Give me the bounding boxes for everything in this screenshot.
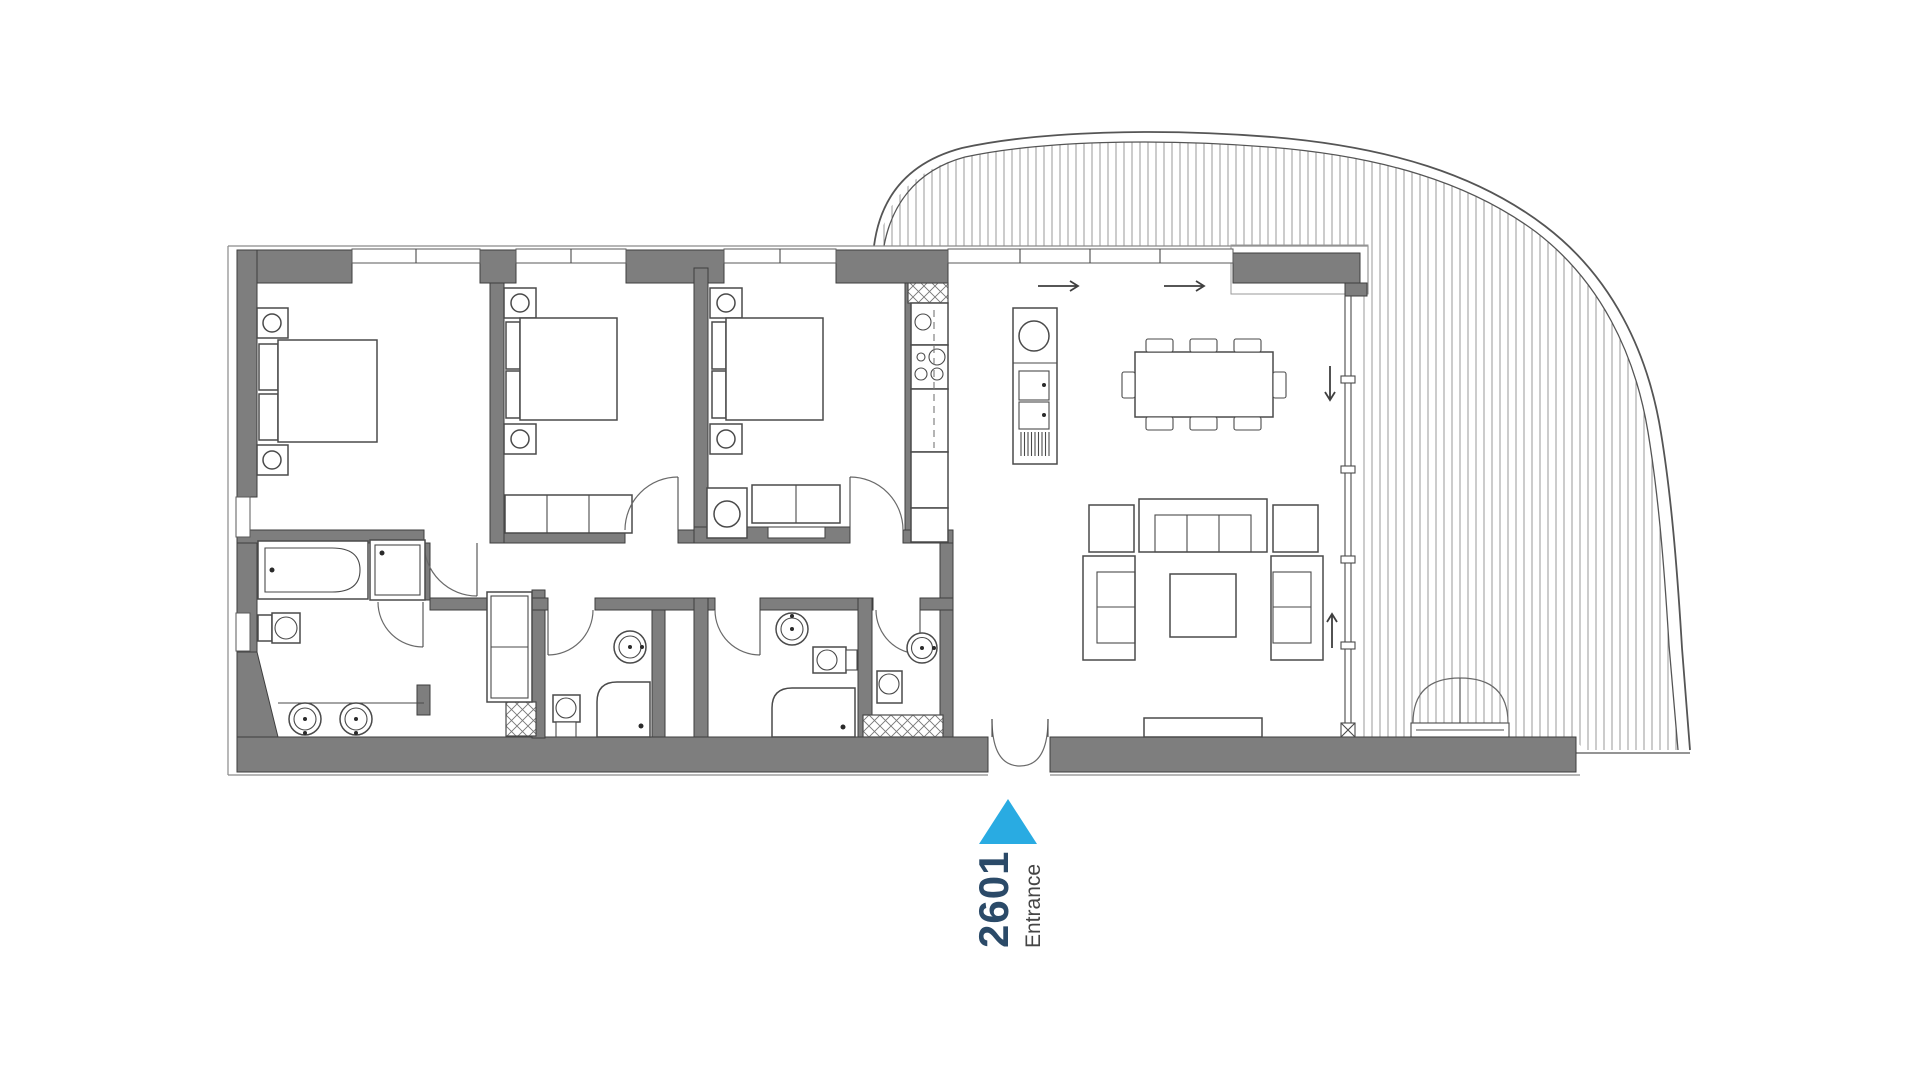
wall-bed2-bottom-b [678, 530, 694, 543]
dining-chair [1146, 417, 1173, 430]
pillow [506, 322, 520, 369]
shaft-kitchen [908, 283, 948, 303]
shower [597, 682, 650, 737]
dining-chair [1190, 339, 1217, 352]
powder-room [876, 610, 937, 703]
wall-top-right-step [1345, 283, 1367, 296]
washbasin-tap-icon [303, 731, 307, 735]
dining-chair [1122, 372, 1135, 398]
bathroom-2 [548, 610, 650, 737]
bedroom-3 [707, 288, 903, 538]
entrance-label: Entrance [1022, 864, 1045, 948]
washbasin-drain-icon [628, 645, 632, 649]
door-arc-ensuite [378, 602, 423, 647]
entry-door-jambs [992, 719, 1048, 737]
pillow [506, 371, 520, 418]
pillow [259, 344, 278, 390]
window-left-1 [236, 497, 250, 537]
double-bed [278, 340, 377, 442]
kitchen-cabinet [911, 303, 948, 345]
living-area [1083, 499, 1323, 737]
window-left-2 [236, 613, 250, 651]
dining-chair [1190, 417, 1217, 430]
washbasin-drain-icon [303, 717, 307, 721]
sofa-three-seat [1139, 499, 1267, 552]
wall-top-pier-3 [626, 250, 724, 283]
slide-arrow-right-icon [1038, 281, 1078, 291]
slide-arrow-up-icon [1327, 614, 1337, 648]
wall-bottom-left [237, 737, 988, 772]
kitchen-cabinet [911, 508, 948, 542]
slide-arrow-down-icon [1325, 366, 1335, 400]
wall-left-chamfer [237, 652, 278, 737]
shaft-corridor [506, 702, 536, 736]
pillow [259, 394, 278, 440]
wall-top-pier-4 [836, 250, 948, 283]
dining-chair [1273, 372, 1286, 398]
nightstand [257, 445, 288, 475]
bench-drawer [768, 527, 825, 538]
wall-top-right-block [1233, 253, 1360, 283]
kitchen-cabinet [911, 452, 948, 508]
washbasin-drain-icon [790, 627, 794, 631]
sink-tap-icon [1042, 413, 1046, 417]
nightstand [504, 288, 536, 318]
washbasin-drain-icon [354, 717, 358, 721]
door-arc-bedroom-2 [625, 477, 678, 530]
washing-machine [707, 488, 747, 538]
dining-area [1122, 339, 1286, 430]
toilet [813, 647, 846, 673]
wall-ensuite-right-b [417, 685, 430, 715]
entry-door-leaf-right [1020, 719, 1048, 766]
wall-left-upper [237, 250, 257, 497]
washbasin-tap-icon [640, 645, 644, 649]
shower-drain-icon [380, 551, 385, 556]
toilet-cistern [258, 615, 272, 641]
dining-table [1135, 352, 1273, 417]
wall-bath2-right [652, 610, 665, 737]
corridor-wardrobe [487, 592, 532, 702]
washbasin-tap-icon [354, 731, 358, 735]
shower-drain-icon [841, 725, 846, 730]
nightstand [504, 424, 536, 454]
nightstand [710, 424, 742, 454]
wall-top-pier-2 [480, 250, 516, 283]
double-bed [520, 318, 617, 420]
pillow [712, 322, 726, 369]
unit-number-label: 2601 [970, 851, 1017, 948]
entrance-marker-icon [979, 799, 1037, 844]
floor-plan-page: 2601 Entrance [0, 0, 1920, 1079]
wall-bottom-right [1050, 737, 1576, 772]
pillow [712, 371, 726, 418]
wall-bath3-left [694, 598, 708, 737]
entry-door-leaf-left [992, 719, 1020, 766]
dining-chair [1234, 417, 1261, 430]
kitchen-island [1013, 308, 1057, 464]
nightstand [710, 288, 742, 318]
toilet-cistern [846, 650, 857, 670]
bathroom-3 [715, 610, 857, 737]
wall-hall-left [940, 543, 953, 737]
floor-plan-drawing: 2601 Entrance [0, 0, 1920, 1079]
ensuite-bathroom [258, 540, 425, 735]
tv-console [1144, 718, 1262, 737]
kitchen-counter [911, 389, 948, 452]
washbasin-tap-icon [932, 646, 936, 650]
toilet [556, 722, 576, 737]
double-bed [726, 318, 823, 420]
armchair [1089, 505, 1134, 552]
bedroom-2 [504, 288, 678, 533]
coffee-table [1170, 574, 1236, 637]
glass-wall-right [1341, 296, 1355, 737]
shower-drain-icon [639, 724, 644, 729]
washbasin-tap-icon [790, 614, 794, 618]
wall-bed1-bed2 [490, 283, 504, 543]
wall-bed2-bed3 [694, 268, 708, 543]
shower [370, 540, 425, 600]
washbasin-drain-icon [920, 646, 924, 650]
sink-tap-icon [1042, 383, 1046, 387]
shaft-powder [863, 715, 943, 737]
door-arc-bedroom-1 [424, 543, 477, 596]
door-arc-bedroom-3 [850, 477, 903, 530]
bathtub-tap-icon [270, 568, 275, 573]
wall-powder-top [920, 598, 953, 610]
kitchen [911, 303, 1057, 542]
nightstand [257, 308, 288, 338]
slide-arrow-right-icon [1164, 281, 1204, 291]
bench-seat [505, 495, 632, 533]
shower [772, 688, 855, 737]
door-arc-bathroom-2 [548, 610, 593, 655]
armchair [1273, 505, 1318, 552]
dining-chair [1146, 339, 1173, 352]
dining-chair [1234, 339, 1261, 352]
wall-bath3-top [760, 598, 873, 610]
door-arc-bathroom-3 [715, 610, 760, 655]
